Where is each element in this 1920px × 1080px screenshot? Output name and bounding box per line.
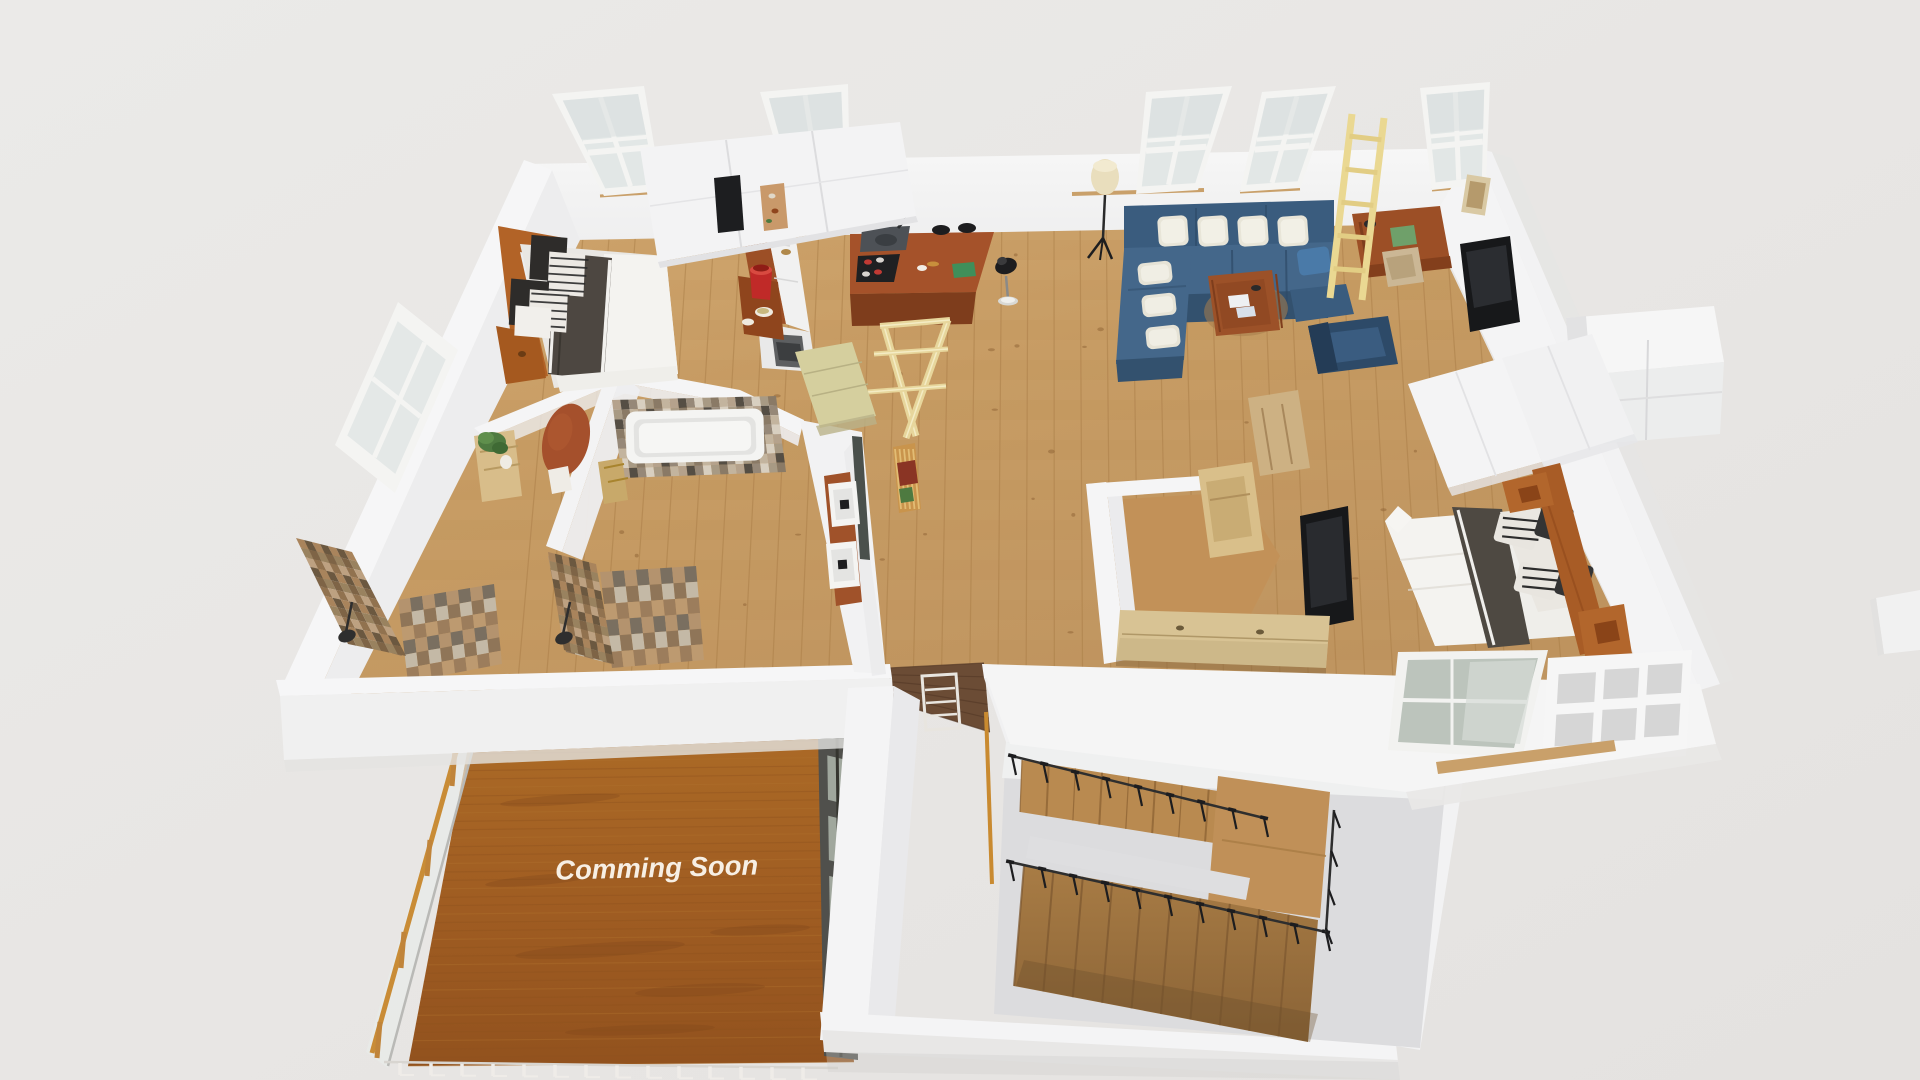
svg-text:Comming Soon: Comming Soon [555,849,759,885]
